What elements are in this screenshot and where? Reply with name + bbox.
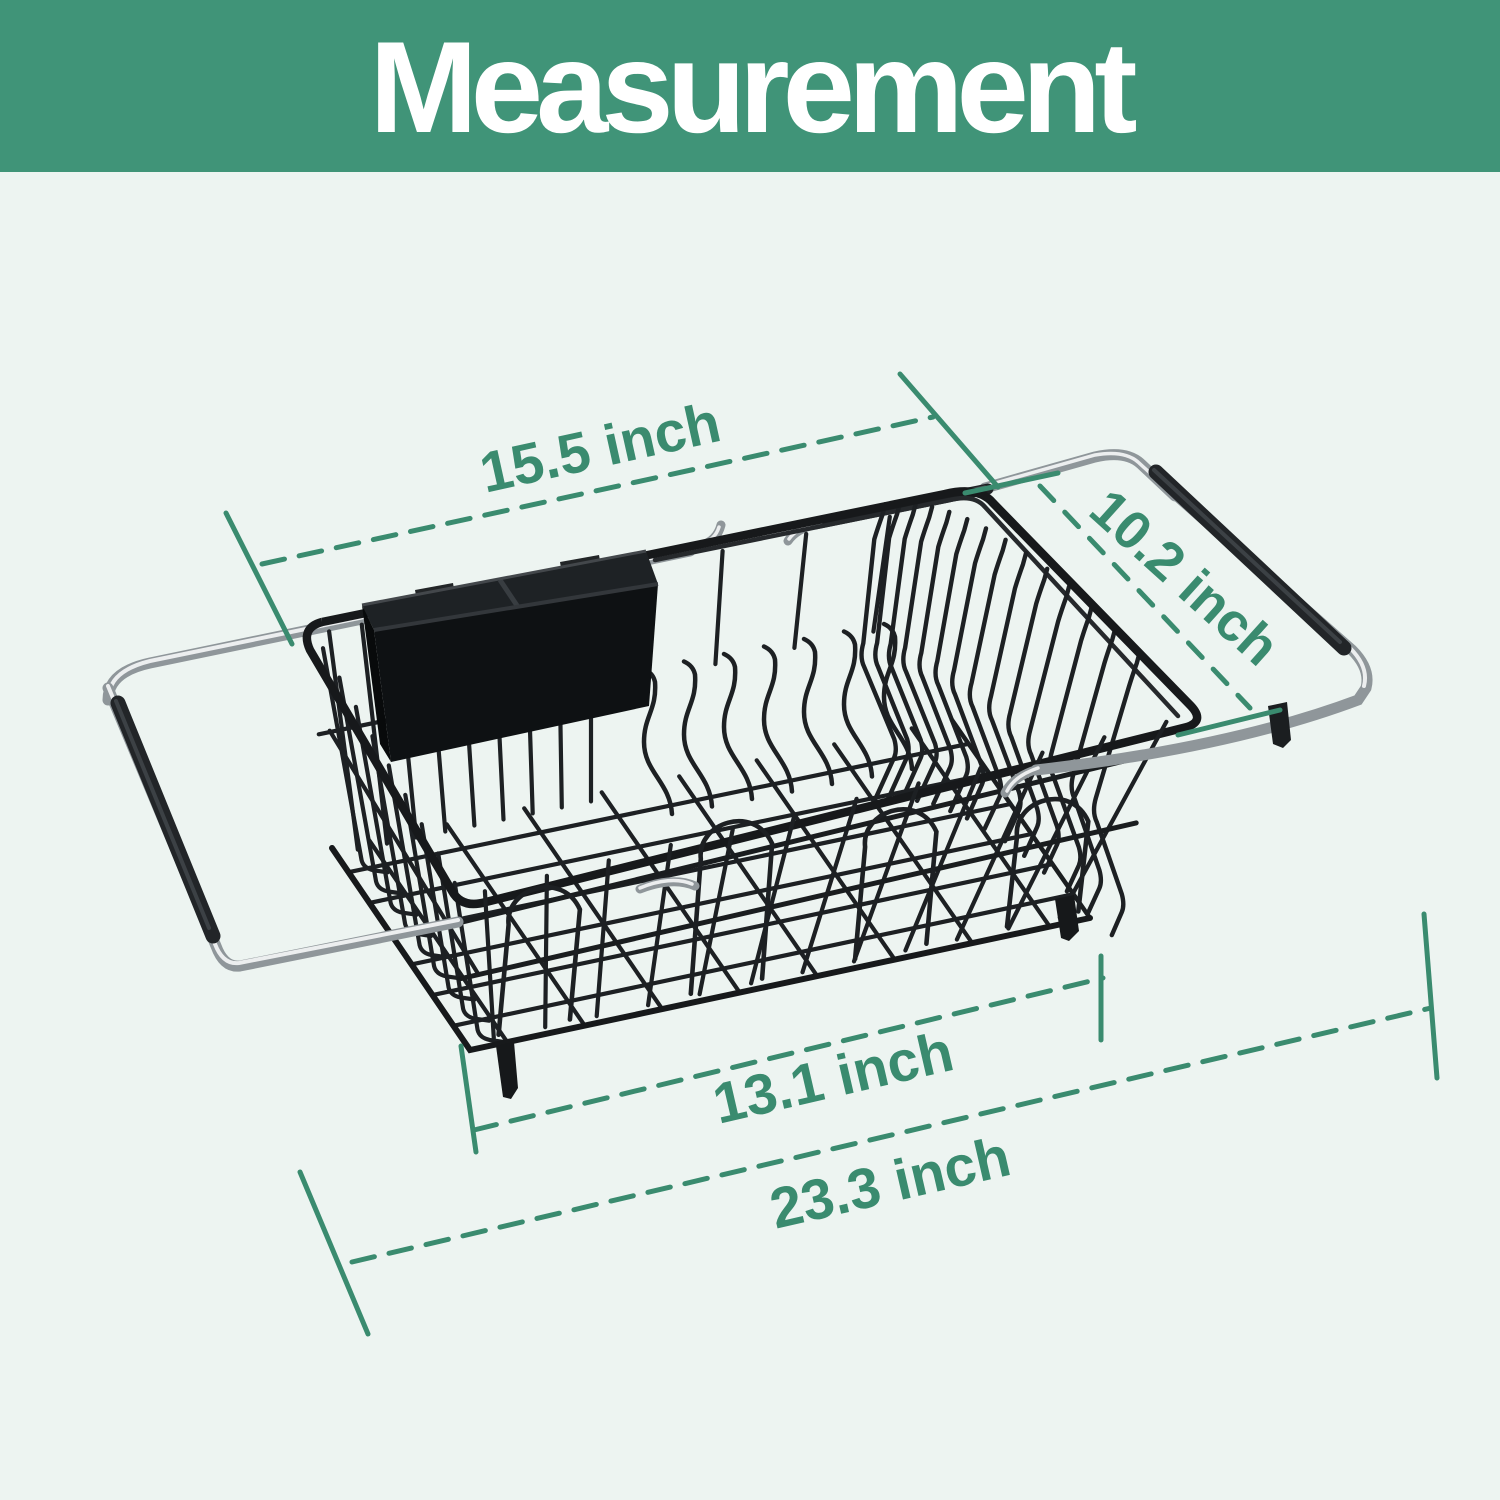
svg-text:13.1 inch: 13.1 inch bbox=[707, 1019, 959, 1136]
svg-text:23.3 inch: 23.3 inch bbox=[764, 1124, 1016, 1241]
